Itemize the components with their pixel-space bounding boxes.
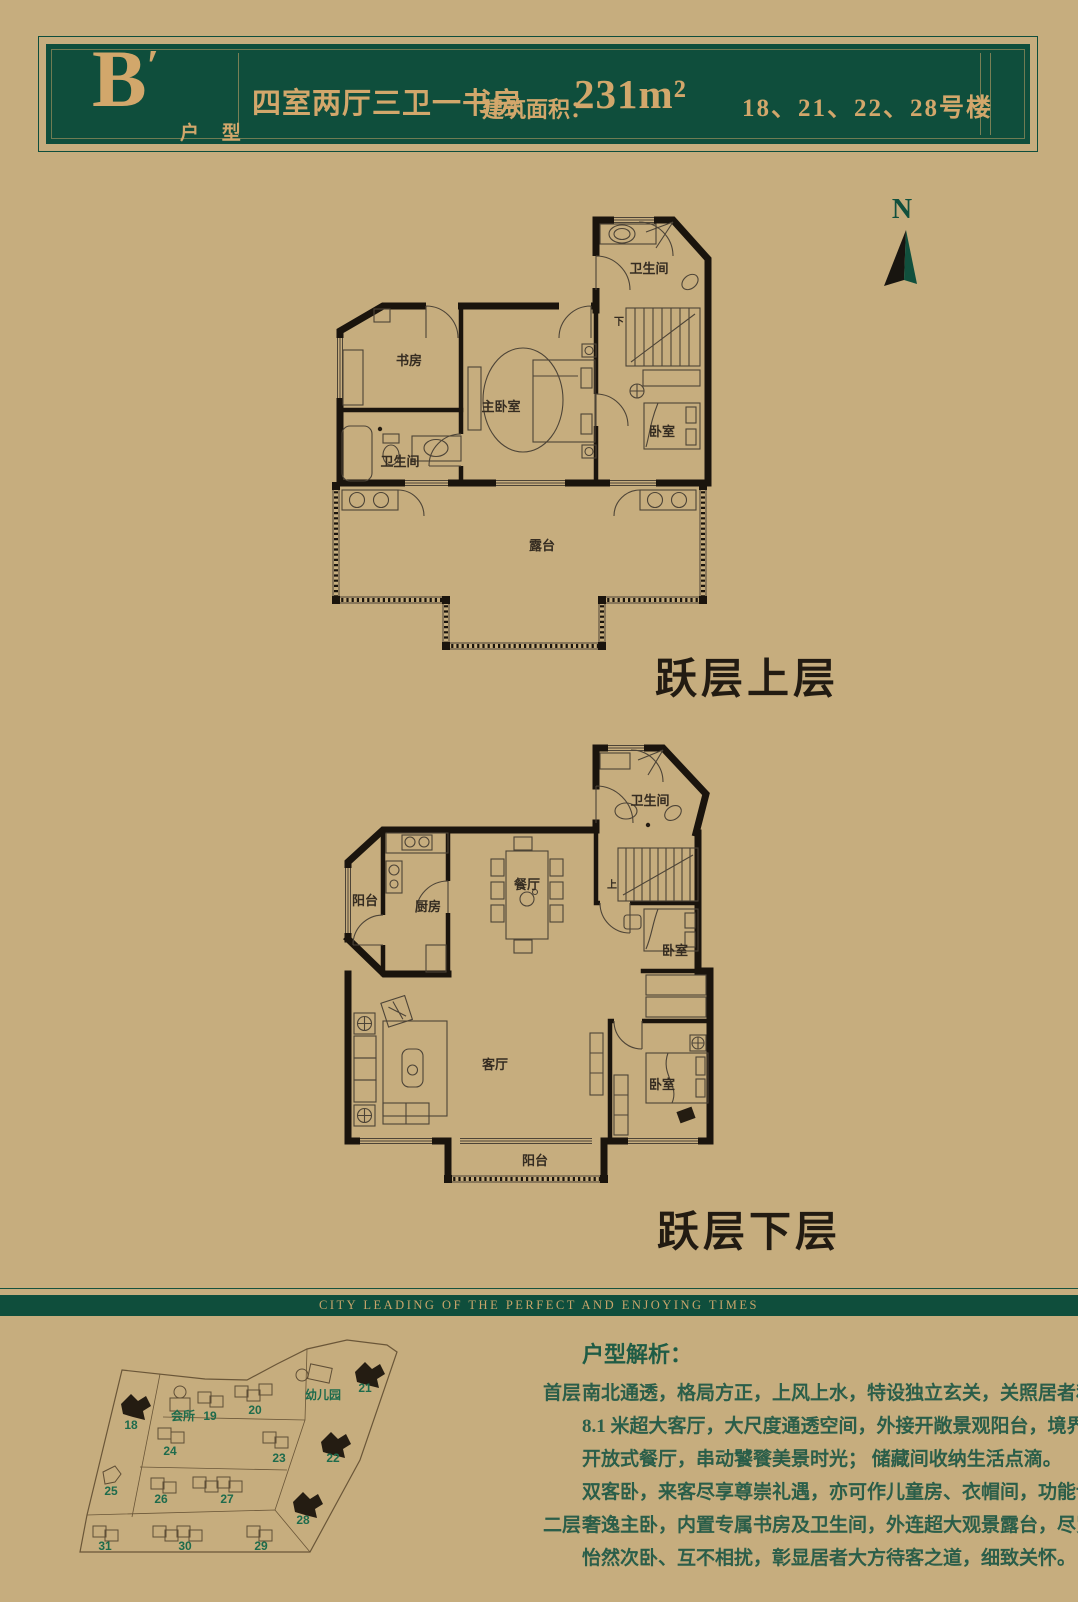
lower-stairs [618, 848, 698, 901]
unit-type-label: 户 型 [180, 118, 250, 145]
map-label-26: 26 [154, 1492, 168, 1506]
analysis-section-label [543, 1476, 582, 1509]
room-label-bedroom: 卧室 [649, 424, 675, 439]
room-label-bath-top: 卫生间 [629, 261, 668, 276]
lower-balcony-diag [348, 939, 448, 974]
header-right-line-2 [990, 53, 991, 135]
analysis-line: 双客卧，来客尽享尊崇礼遇，亦可作儿童房、衣帽间，功能设置一切随心。 [582, 1476, 1078, 1509]
analysis-row: 二层奢逸主卧，内置专属书房及卫生间，外连超大观景露台，尽览湖景、尊贵感浸润其中 [543, 1509, 1078, 1542]
analysis-block: 户型解析： 首层南北通透，格局方正，上风上水，特设独立玄关，关照居者私密。8.1… [543, 1337, 1078, 1575]
room-label-bedroom-low: 卧室 [649, 1077, 675, 1092]
map-label-29: 29 [254, 1539, 268, 1553]
map-label-23: 23 [272, 1451, 286, 1465]
room-label-dining: 餐厅 [513, 877, 540, 892]
room-label-master: 主卧室 [481, 399, 520, 414]
analysis-line: 奢逸主卧，内置专属书房及卫生间，外连超大观景露台，尽览湖景、尊贵感浸润其中 [582, 1509, 1078, 1542]
map-label-20: 20 [248, 1403, 262, 1417]
analysis-line: 南北通透，格局方正，上风上水，特设独立玄关，关照居者私密。 [582, 1377, 1078, 1410]
room-label-study: 书房 [396, 353, 422, 368]
floorplan-upper: 下 [328, 198, 718, 658]
upper-stairs [626, 308, 700, 366]
floorplan-lower: 上 [328, 733, 718, 1183]
lower-stairs-label: 上 [607, 878, 617, 891]
room-label-bath: 卫生间 [630, 793, 669, 808]
map-label-25: 25 [104, 1484, 118, 1498]
map-label-幼儿园: 幼儿园 [305, 1387, 341, 1402]
analysis-line: 怡然次卧、互不相扰，彰显居者大方待客之道，细致关怀。 [582, 1542, 1076, 1575]
room-label-bath: 卫生间 [380, 454, 419, 469]
upper-stairs-label: 下 [614, 316, 624, 328]
header-green-box: B′ 户 型 四室两厅三卫一书房 建筑面积： 231m² 18、21、22、28… [46, 44, 1030, 144]
analysis-row: 开放式餐厅，串动饕餮美景时光； 储藏间收纳生活点滴。 [543, 1443, 1078, 1476]
map-label-会所: 会所 [171, 1408, 195, 1423]
upper-bathroom-walls [596, 220, 708, 483]
analysis-line: 开放式餐厅，串动饕餮美景时光； 储藏间收纳生活点滴。 [582, 1443, 1062, 1476]
lower-bathroom-walls [596, 748, 706, 833]
terrace-units [342, 490, 696, 516]
analysis-line: 8.1 米超大客厅，大尺度通透空间，外接开敞景观阳台，境界尽在视野间。 [582, 1410, 1078, 1443]
map-label-22: 22 [326, 1451, 340, 1465]
north-arrow-icon [864, 226, 940, 292]
analysis-row: 双客卧，来客尽享尊崇礼遇，亦可作儿童房、衣帽间，功能设置一切随心。 [543, 1476, 1078, 1509]
room-label-living: 客厅 [482, 1057, 508, 1072]
map-label-31: 31 [98, 1539, 112, 1553]
lower-wall-stairhall [596, 830, 698, 903]
analysis-row: 怡然次卧、互不相扰，彰显居者大方待客之道，细致关怀。 [543, 1542, 1078, 1575]
divider-hairline [0, 1288, 1078, 1289]
upper-windows [335, 215, 656, 488]
site-map: 18会所1920幼儿园2124232225262728313029 [55, 1322, 455, 1602]
wardrobe-row-2 [646, 997, 706, 1017]
map-label-18: 18 [124, 1418, 138, 1432]
map-label-19: 19 [203, 1409, 217, 1423]
header-right-line-1 [980, 53, 981, 135]
map-label-24: 24 [163, 1444, 177, 1458]
caption-upper: 跃层上层 [655, 645, 839, 706]
map-label-28: 28 [296, 1513, 310, 1527]
lower-balcony-railing [444, 1175, 608, 1183]
building-18-highlight [121, 1394, 151, 1420]
map-label-30: 30 [178, 1539, 192, 1553]
analysis-title: 户型解析： [582, 1337, 1078, 1369]
compass: N [864, 194, 940, 297]
header-panel: B′ 户 型 四室两厅三卫一书房 建筑面积： 231m² 18、21、22、28… [38, 36, 1038, 152]
room-label-kitchen: 厨房 [415, 899, 441, 914]
slogan-text: CITY LEADING OF THE PERFECT AND ENJOYING… [319, 1298, 759, 1313]
divider-band: CITY LEADING OF THE PERFECT AND ENJOYING… [0, 1295, 1078, 1316]
map-label-27: 27 [220, 1492, 234, 1506]
terrace-railing [332, 482, 707, 650]
north-label: N [864, 194, 940, 226]
analysis-section-label [543, 1410, 582, 1443]
analysis-row: 8.1 米超大客厅，大尺度通透空间，外接开敞景观阳台，境界尽在视野间。 [543, 1410, 1078, 1443]
map-label-21: 21 [358, 1381, 372, 1395]
analysis-section-label [543, 1443, 582, 1476]
area-value: 231m² [574, 70, 687, 118]
analysis-section-label: 二层 [543, 1509, 582, 1542]
analysis-section-label: 首层 [543, 1377, 582, 1410]
room-label-terrace: 露台 [529, 538, 555, 553]
site-boundary [80, 1340, 397, 1552]
analysis-sections: 首层南北通透，格局方正，上风上水，特设独立玄关，关照居者私密。8.1 米超大客厅… [543, 1377, 1078, 1575]
header-divider-line [238, 53, 239, 135]
living-furniture [354, 996, 447, 1126]
room-label-bedroom-mid: 卧室 [662, 943, 688, 958]
unit-prime: ′ [147, 41, 159, 90]
analysis-row: 首层南北通透，格局方正，上风上水，特设独立玄关，关照居者私密。 [543, 1377, 1078, 1410]
caption-lower: 跃层下层 [657, 1198, 841, 1259]
room-label-balcony-low: 阳台 [522, 1153, 548, 1168]
unit-letter: B′ [92, 38, 159, 120]
analysis-section-label [543, 1542, 582, 1575]
upper-bedroom-furniture [630, 384, 700, 449]
room-label-balcony: 阳台 [352, 893, 378, 908]
upper-wardrobe [643, 370, 700, 386]
building-numbers: 18、21、22、28号楼 [742, 88, 993, 124]
wardrobe-row-1 [646, 975, 706, 995]
dining-set [491, 837, 563, 953]
